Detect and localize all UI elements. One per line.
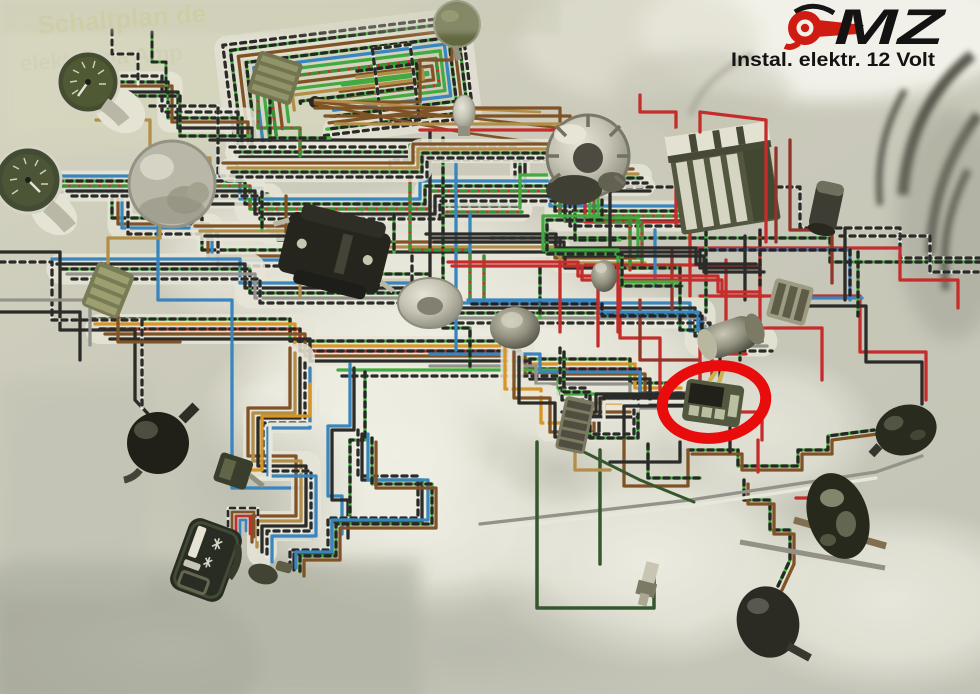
svg-text:Instal. elektr. 12 Volt: Instal. elektr. 12 Volt [731, 50, 936, 71]
svg-text:MZ: MZ [834, 0, 948, 55]
